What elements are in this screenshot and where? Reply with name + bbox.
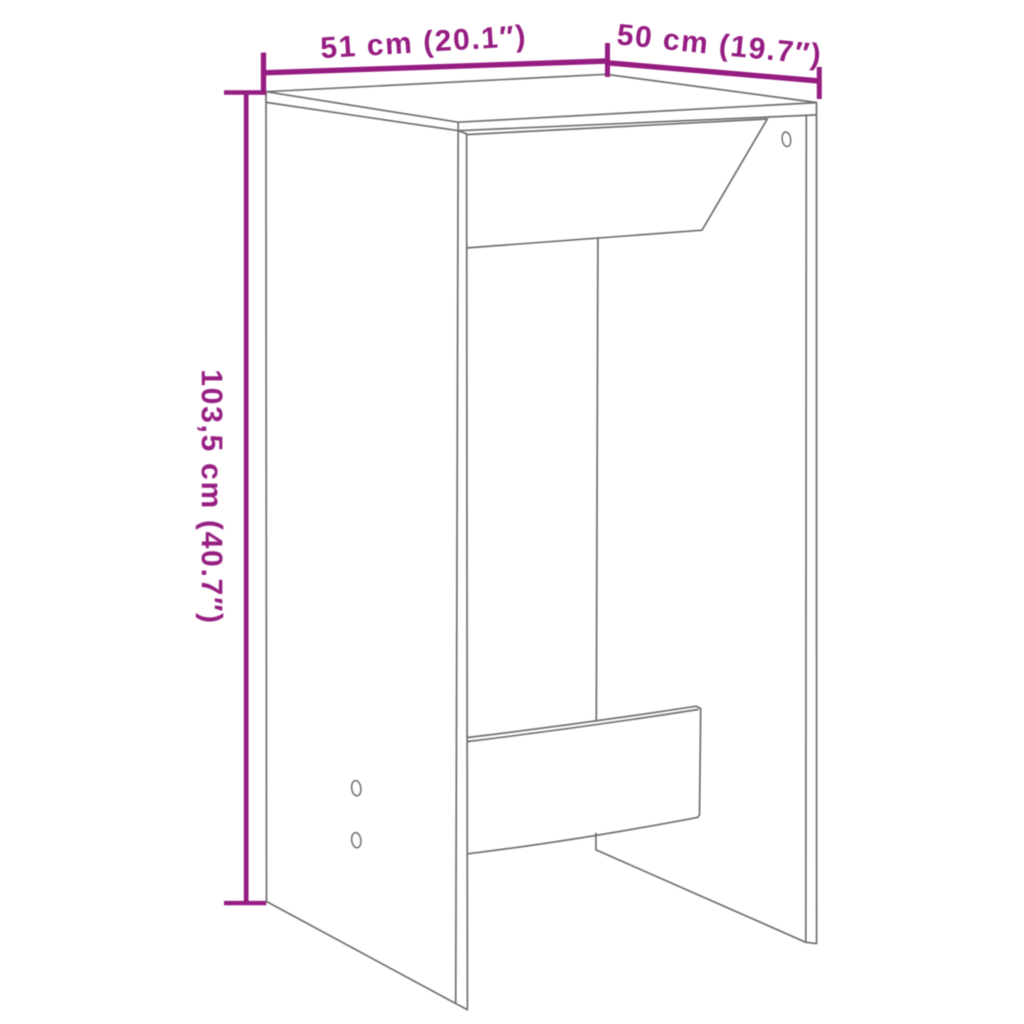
svg-text:51 cm (20.1″): 51 cm (20.1″) — [319, 20, 528, 66]
svg-text:103,5 cm (40.7″): 103,5 cm (40.7″) — [195, 369, 228, 625]
